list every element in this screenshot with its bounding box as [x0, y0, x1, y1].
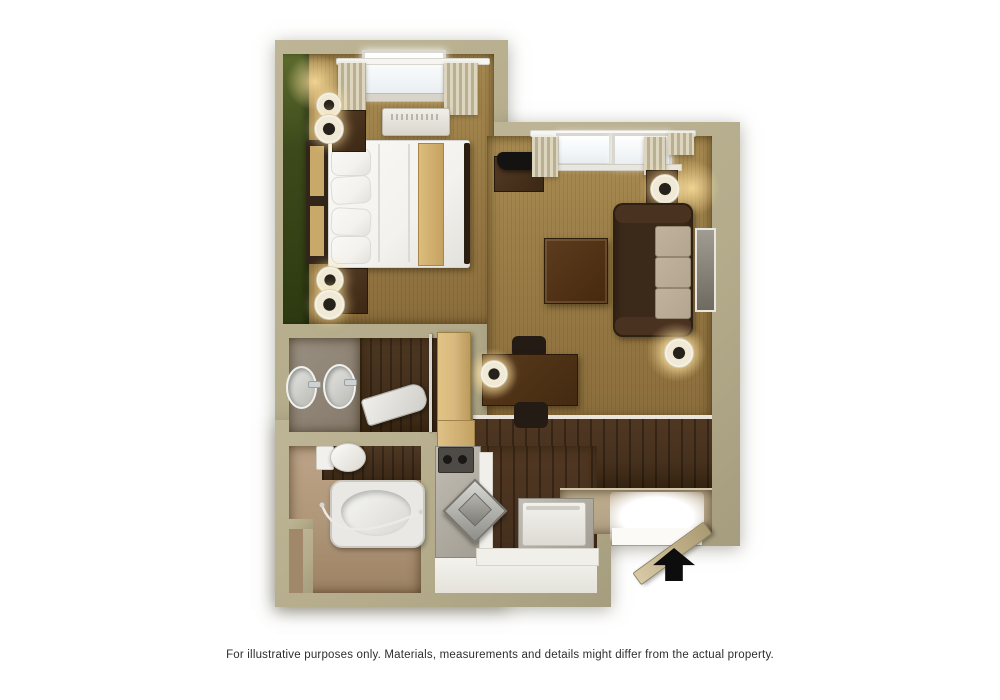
bed-headboard: [306, 140, 330, 264]
bedroom-window-sill: [358, 93, 446, 102]
burner-2: [458, 455, 467, 464]
bedroom-curtain-right: [444, 62, 478, 115]
burner-1: [443, 455, 452, 464]
vanity-faucet-2: [344, 379, 357, 386]
coffee-table: [544, 238, 608, 304]
living-curtain-right: [668, 132, 694, 155]
bed-foot-rail: [464, 143, 470, 264]
sofa-cushion-1: [655, 226, 691, 257]
headboard-panel-bottom: [310, 206, 324, 256]
bed-pillow-1: [331, 148, 371, 176]
shower-rod-arc: [285, 440, 430, 600]
sofa-cushion-3: [655, 288, 691, 319]
bed-pillow-3: [330, 207, 371, 237]
carpet-hardwood-transition-strip: [473, 415, 712, 419]
desk-lamp: [480, 360, 508, 388]
dishwasher: [522, 502, 586, 546]
sofa-armrest-bottom: [615, 317, 691, 335]
vanity-sink-oval-2: [323, 364, 356, 409]
wall-mirror: [695, 228, 716, 312]
floor-plan-image: For illustrative purposes only. Material…: [0, 0, 1000, 700]
headboard-panel-top: [310, 146, 324, 196]
desk-chair-bottom: [514, 402, 548, 428]
sofa-armrest-top: [615, 205, 691, 223]
dishwasher-handle: [526, 506, 580, 510]
bed-runner: [418, 143, 444, 266]
sofa-cushion-2: [655, 257, 691, 288]
living-window-glass-left: [556, 133, 612, 166]
table-lamp-bedroom-2: [314, 114, 344, 144]
kitchen-sink-basin: [458, 493, 492, 527]
closet-hanging-pole: [429, 334, 432, 432]
vanity-faucet-1: [308, 381, 321, 388]
cooktop: [438, 447, 474, 473]
ac-unit: [382, 108, 450, 136]
bed-pillow-2: [330, 175, 372, 206]
bed-pillow-4: [331, 236, 371, 264]
disclaimer-caption: For illustrative purposes only. Material…: [0, 649, 1000, 661]
bedroom-curtain-left: [338, 62, 366, 115]
side-table-lamp: [650, 174, 680, 204]
table-lamp-bedroom-4: [314, 289, 345, 320]
kitchen-counter-bottom-front: [476, 548, 599, 566]
duvet-fold-line-1: [378, 144, 380, 262]
wall-sconce-lamp: [664, 338, 694, 368]
kitchen-corner-counter: [437, 420, 475, 448]
living-curtain-left: [532, 136, 558, 177]
ac-vent-lines: [391, 114, 441, 120]
duvet-fold-line-2: [408, 144, 410, 262]
